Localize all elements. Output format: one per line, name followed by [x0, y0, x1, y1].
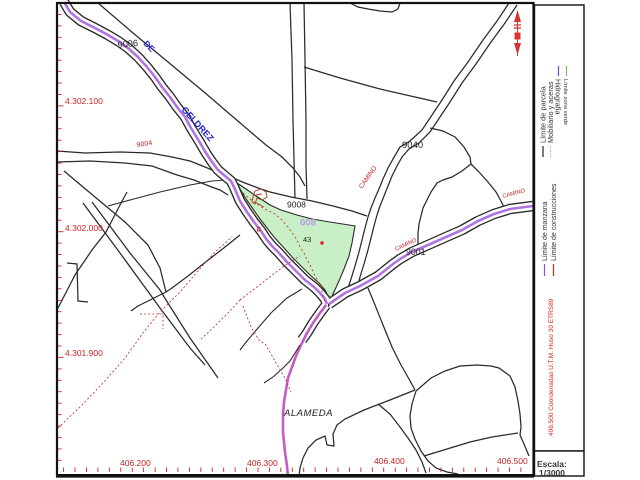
svg-text:Límite zona verde: Límite zona verde [562, 79, 568, 125]
svg-text:9040: 9040 [402, 140, 423, 151]
svg-text:9008: 9008 [287, 200, 306, 210]
svg-text:406.400: 406.400 [374, 456, 405, 466]
svg-text:Hidrografía: Hidrografía [554, 79, 563, 115]
svg-text:406.200: 406.200 [120, 458, 151, 468]
svg-text:43: 43 [303, 235, 311, 244]
svg-text:008: 008 [300, 218, 316, 229]
svg-text:Límite de manzana: Límite de manzana [542, 201, 549, 261]
svg-text:406.500 Coordenadas U.T.M. Hus: 406.500 Coordenadas U.T.M. Huso 30 ETRS8… [548, 298, 555, 436]
svg-text:406.500: 406.500 [497, 456, 528, 466]
svg-text:4.302.100: 4.302.100 [65, 96, 103, 106]
svg-text:4.301.900: 4.301.900 [65, 348, 103, 358]
svg-text:ALAMEDA: ALAMEDA [283, 408, 333, 419]
svg-text:406.300: 406.300 [247, 458, 278, 468]
svg-text:Límite de construcciones: Límite de construcciones [551, 183, 558, 261]
svg-text:4.302.000: 4.302.000 [65, 223, 103, 233]
svg-text:9001: 9001 [406, 247, 426, 257]
svg-text:9006: 9006 [117, 38, 138, 50]
svg-text:1/3000: 1/3000 [539, 468, 565, 478]
